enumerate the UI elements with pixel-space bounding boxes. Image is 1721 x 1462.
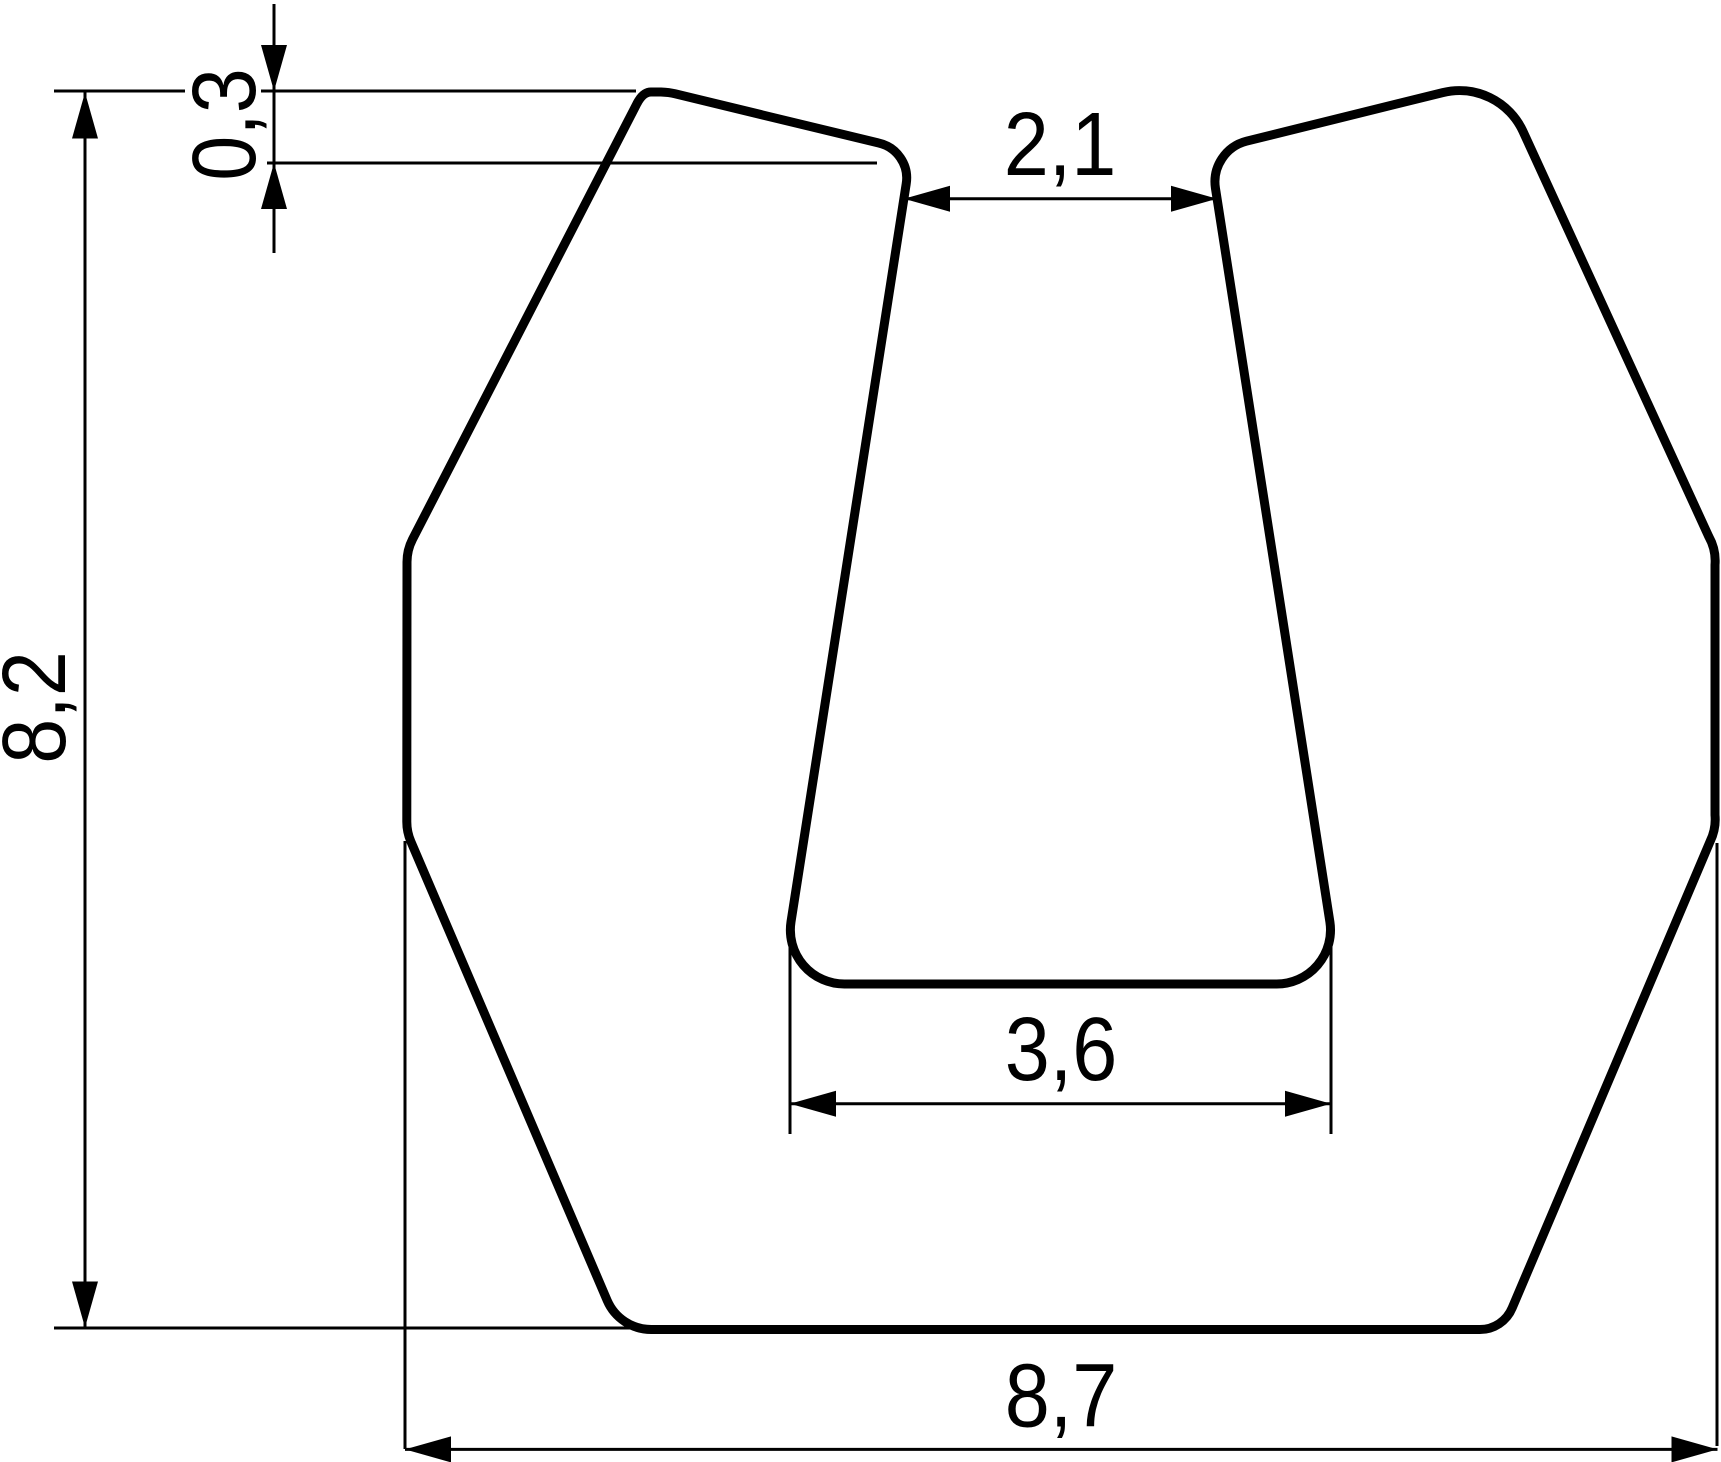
svg-text:3,6: 3,6 bbox=[1005, 999, 1118, 1100]
svg-text:0,3: 0,3 bbox=[174, 68, 275, 181]
svg-text:2,1: 2,1 bbox=[1004, 94, 1117, 195]
svg-text:8,7: 8,7 bbox=[1005, 1346, 1118, 1447]
svg-text:8,2: 8,2 bbox=[0, 651, 85, 764]
